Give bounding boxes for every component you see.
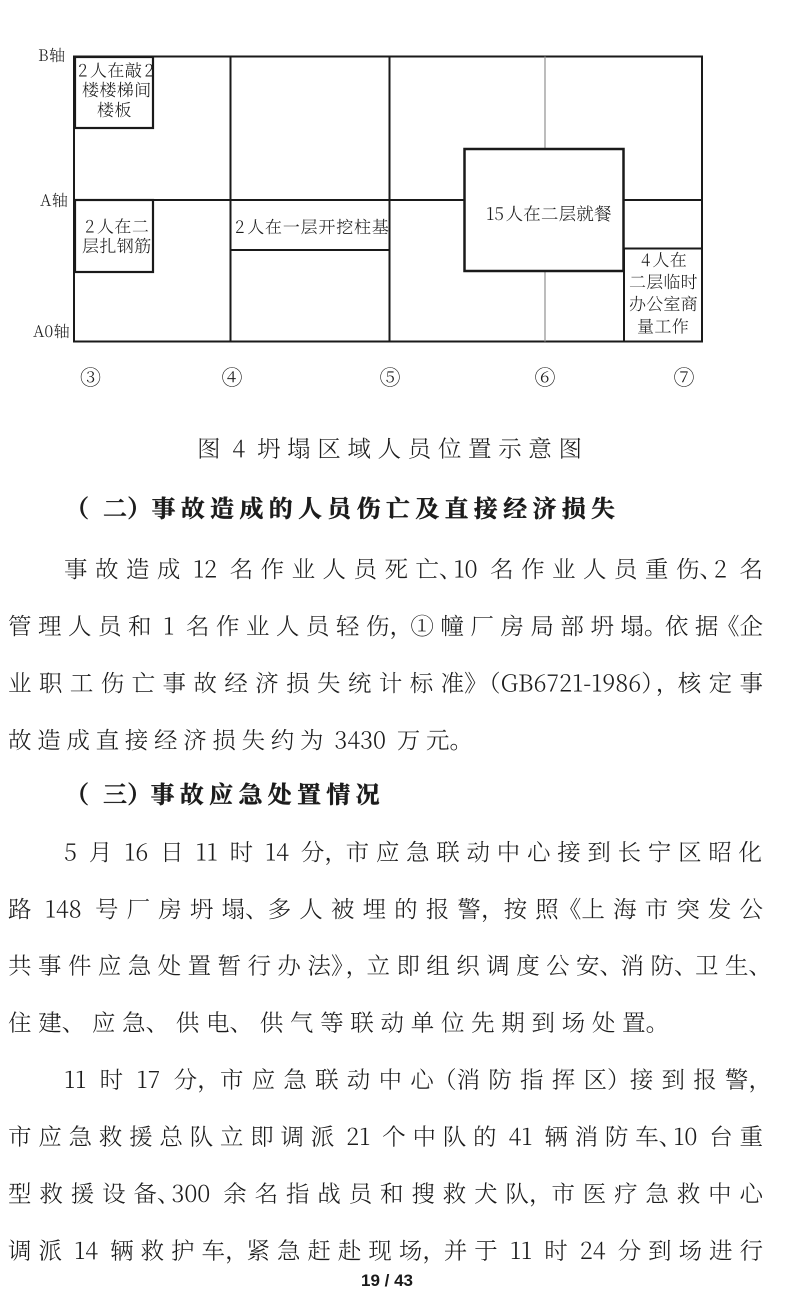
svg-text:19 / 43: 19 / 43 [361, 1271, 413, 1290]
